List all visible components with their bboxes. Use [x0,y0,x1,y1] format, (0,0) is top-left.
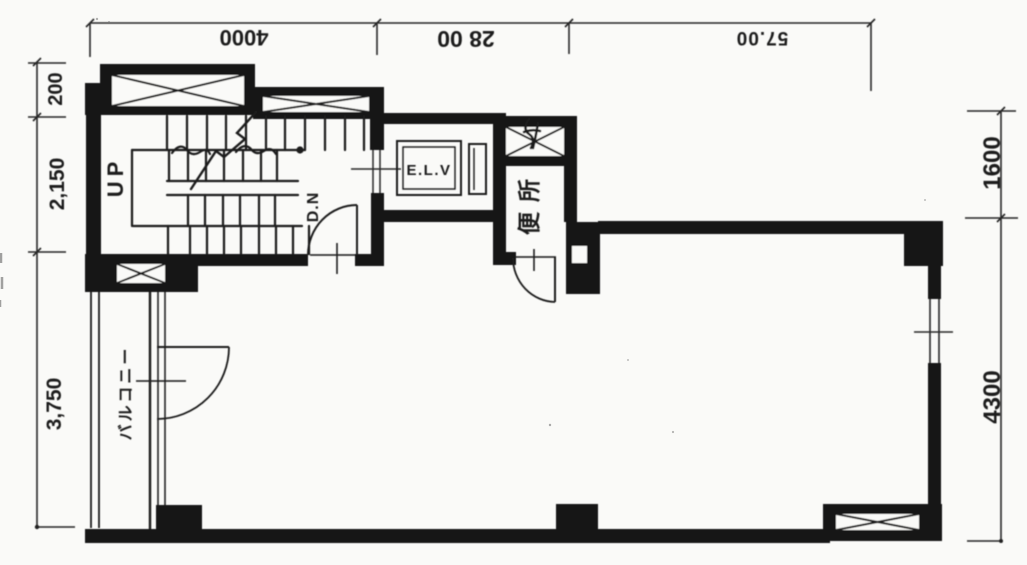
svg-text:1600: 1600 [979,136,1006,189]
svg-text:57.00: 57.00 [736,27,789,48]
svg-text:28 00: 28 00 [437,26,495,52]
svg-text:4300: 4300 [979,370,1006,423]
svg-text:E.L.V: E.L.V [406,162,451,179]
svg-text:3,750: 3,750 [43,378,66,431]
svg-text:UP: UP [103,157,128,198]
svg-text:4000: 4000 [220,25,269,50]
svg-text:バルコニー: バルコニー [117,346,135,441]
svg-text:D.N: D.N [305,192,322,223]
svg-text:200: 200 [45,72,67,105]
svg-text:2,150: 2,150 [46,158,69,211]
svg-text:便所: 便所 [516,169,542,235]
